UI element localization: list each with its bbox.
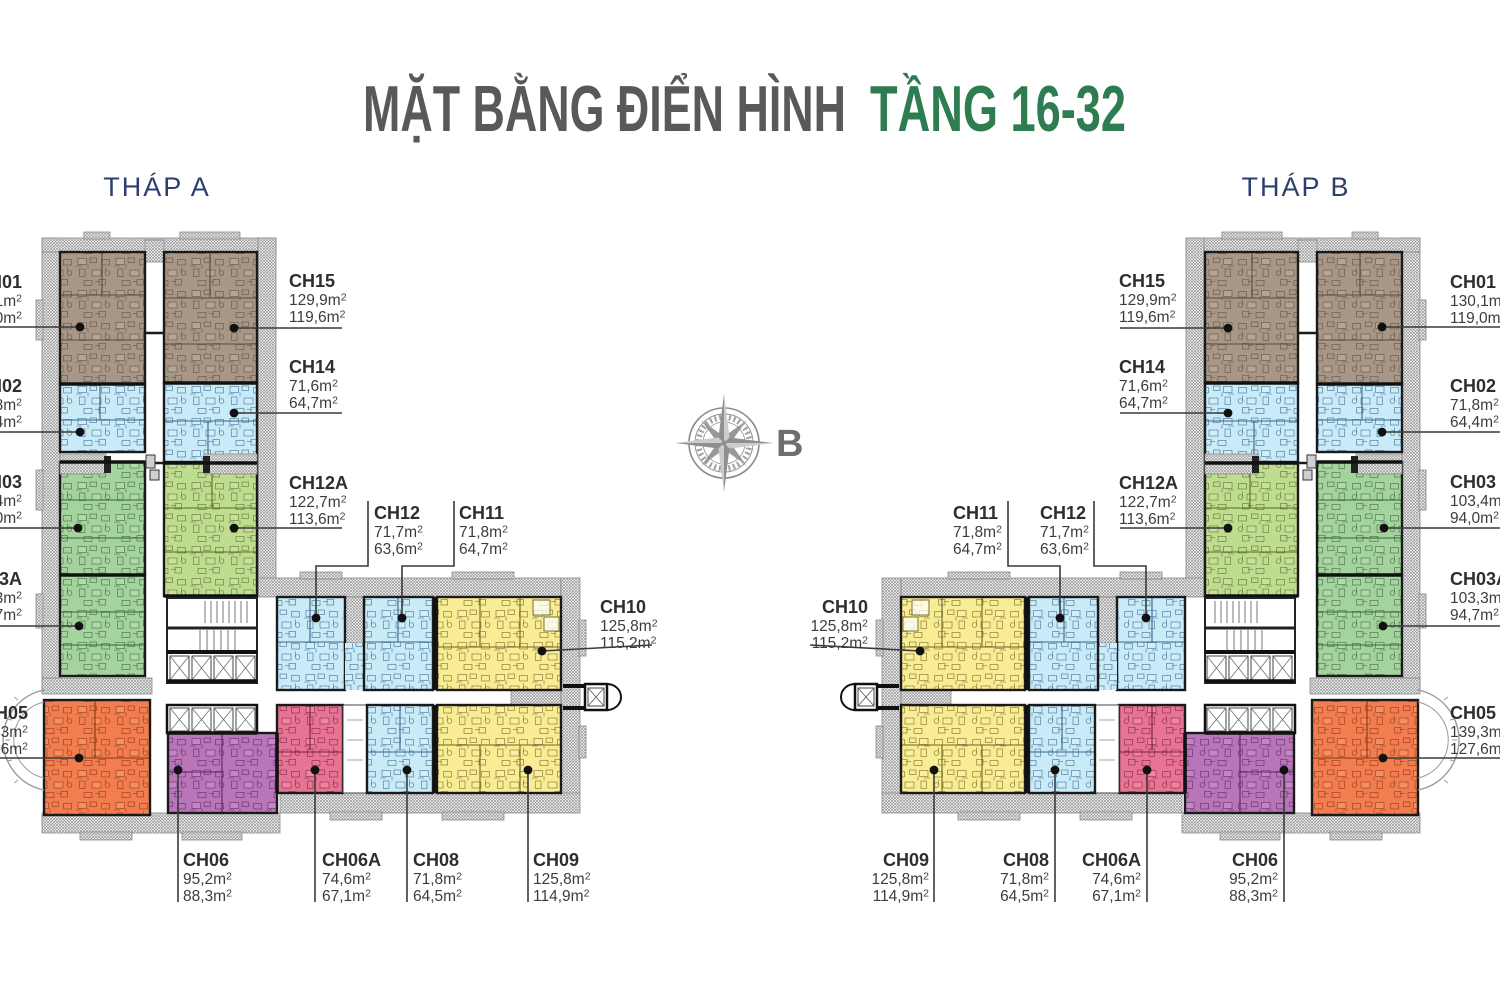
- svg-text:CH03A: CH03A: [1450, 569, 1500, 589]
- svg-text:71,8m2: 71,8m2: [953, 524, 1002, 542]
- svg-text:95,2m2: 95,2m2: [1229, 871, 1278, 889]
- svg-text:CH03: CH03: [1450, 472, 1496, 492]
- svg-text:CH09: CH09: [533, 850, 579, 870]
- svg-text:CH14: CH14: [289, 357, 335, 377]
- svg-text:CH15: CH15: [1119, 271, 1165, 291]
- svg-text:CH09: CH09: [883, 850, 929, 870]
- svg-text:71,7m2: 71,7m2: [1040, 524, 1089, 542]
- svg-text:127,6m2: 127,6m2: [1450, 741, 1500, 759]
- svg-text:64,5m2: 64,5m2: [413, 888, 462, 906]
- svg-text:125,8m2: 125,8m2: [810, 618, 868, 636]
- svg-text:71,8m2: 71,8m2: [413, 871, 462, 889]
- svg-text:CH02: CH02: [1450, 376, 1496, 396]
- svg-text:129,9m2: 129,9m2: [289, 292, 347, 310]
- svg-text:CH02: CH02: [0, 376, 22, 396]
- svg-text:115,2m2: 115,2m2: [812, 635, 869, 653]
- svg-text:74,6m2: 74,6m2: [1092, 871, 1141, 889]
- svg-text:CH12A: CH12A: [1119, 473, 1178, 493]
- svg-text:115,2m2: 115,2m2: [600, 635, 657, 653]
- svg-text:CH12: CH12: [374, 503, 420, 523]
- svg-text:CH08: CH08: [1003, 850, 1049, 870]
- svg-text:CH01: CH01: [1450, 272, 1496, 292]
- svg-text:103,4m2: 103,4m2: [1450, 493, 1500, 511]
- svg-text:CH10: CH10: [822, 597, 868, 617]
- svg-text:71,8m2: 71,8m2: [1450, 397, 1499, 415]
- svg-text:CH15: CH15: [289, 271, 335, 291]
- svg-text:95,2m2: 95,2m2: [183, 871, 232, 889]
- svg-text:64,5m2: 64,5m2: [1000, 888, 1049, 906]
- svg-text:119,6m2: 119,6m2: [289, 309, 346, 327]
- svg-text:88,3m2: 88,3m2: [183, 888, 232, 906]
- svg-text:88,3m2: 88,3m2: [1229, 888, 1278, 906]
- svg-text:THÁP A: THÁP A: [103, 172, 211, 202]
- svg-text:103,3m2: 103,3m2: [1450, 590, 1500, 608]
- svg-text:CH14: CH14: [1119, 357, 1165, 377]
- svg-text:122,7m2: 122,7m2: [1119, 494, 1177, 512]
- svg-text:94,7m2: 94,7m2: [1450, 607, 1499, 625]
- svg-text:129,9m2: 129,9m2: [1119, 292, 1177, 310]
- svg-text:94,0m2: 94,0m2: [1450, 510, 1499, 528]
- svg-text:THÁP B: THÁP B: [1241, 172, 1350, 202]
- svg-text:125,8m2: 125,8m2: [533, 871, 591, 889]
- svg-text:71,8m2: 71,8m2: [1000, 871, 1049, 889]
- svg-text:CH06A: CH06A: [322, 850, 381, 870]
- svg-text:CH03A: CH03A: [0, 569, 22, 589]
- svg-text:114,9m2: 114,9m2: [873, 888, 930, 906]
- svg-text:MẶT BẰNG ĐIỂN HÌNH: MẶT BẰNG ĐIỂN HÌNH: [363, 72, 846, 145]
- svg-text:67,1m2: 67,1m2: [322, 888, 371, 906]
- svg-text:CH05: CH05: [0, 703, 28, 723]
- svg-text:71,8m2: 71,8m2: [459, 524, 508, 542]
- svg-text:67,1m2: 67,1m2: [1092, 888, 1141, 906]
- svg-text:71,6m2: 71,6m2: [1119, 378, 1168, 396]
- svg-text:CH08: CH08: [413, 850, 459, 870]
- svg-text:CH06: CH06: [183, 850, 229, 870]
- svg-text:CH12: CH12: [1040, 503, 1086, 523]
- svg-text:119,0m2: 119,0m2: [1450, 310, 1500, 328]
- svg-text:64,7m2: 64,7m2: [953, 541, 1002, 559]
- svg-text:64,7m2: 64,7m2: [289, 395, 338, 413]
- svg-text:130,1m2: 130,1m2: [1450, 293, 1500, 311]
- svg-text:B: B: [776, 423, 803, 465]
- svg-text:63,6m2: 63,6m2: [1040, 541, 1089, 559]
- svg-text:64,7m2: 64,7m2: [459, 541, 508, 559]
- svg-text:114,9m2: 114,9m2: [533, 888, 590, 906]
- svg-text:CH06: CH06: [1232, 850, 1278, 870]
- svg-text:125,8m2: 125,8m2: [600, 618, 658, 636]
- svg-text:63,6m2: 63,6m2: [374, 541, 423, 559]
- svg-text:64,7m2: 64,7m2: [1119, 395, 1168, 413]
- svg-text:CH12A: CH12A: [289, 473, 348, 493]
- svg-text:139,3m2: 139,3m2: [1450, 724, 1500, 742]
- svg-text:CH06A: CH06A: [1082, 850, 1141, 870]
- svg-text:122,7m2: 122,7m2: [289, 494, 347, 512]
- svg-text:113,6m2: 113,6m2: [289, 511, 346, 529]
- svg-text:71,6m2: 71,6m2: [289, 378, 338, 396]
- svg-text:CH11: CH11: [459, 503, 504, 523]
- svg-text:CH10: CH10: [600, 597, 646, 617]
- svg-text:CH01: CH01: [0, 272, 22, 292]
- svg-text:TẦNG 16-32: TẦNG 16-32: [870, 72, 1126, 145]
- svg-text:125,8m2: 125,8m2: [871, 871, 929, 889]
- svg-text:113,6m2: 113,6m2: [1119, 511, 1176, 529]
- svg-text:74,6m2: 74,6m2: [322, 871, 371, 889]
- svg-text:CH05: CH05: [1450, 703, 1496, 723]
- svg-text:119,6m2: 119,6m2: [1119, 309, 1176, 327]
- svg-text:CH11: CH11: [953, 503, 998, 523]
- svg-text:64,4m2: 64,4m2: [1450, 414, 1499, 432]
- svg-text:CH03: CH03: [0, 472, 22, 492]
- svg-text:71,7m2: 71,7m2: [374, 524, 423, 542]
